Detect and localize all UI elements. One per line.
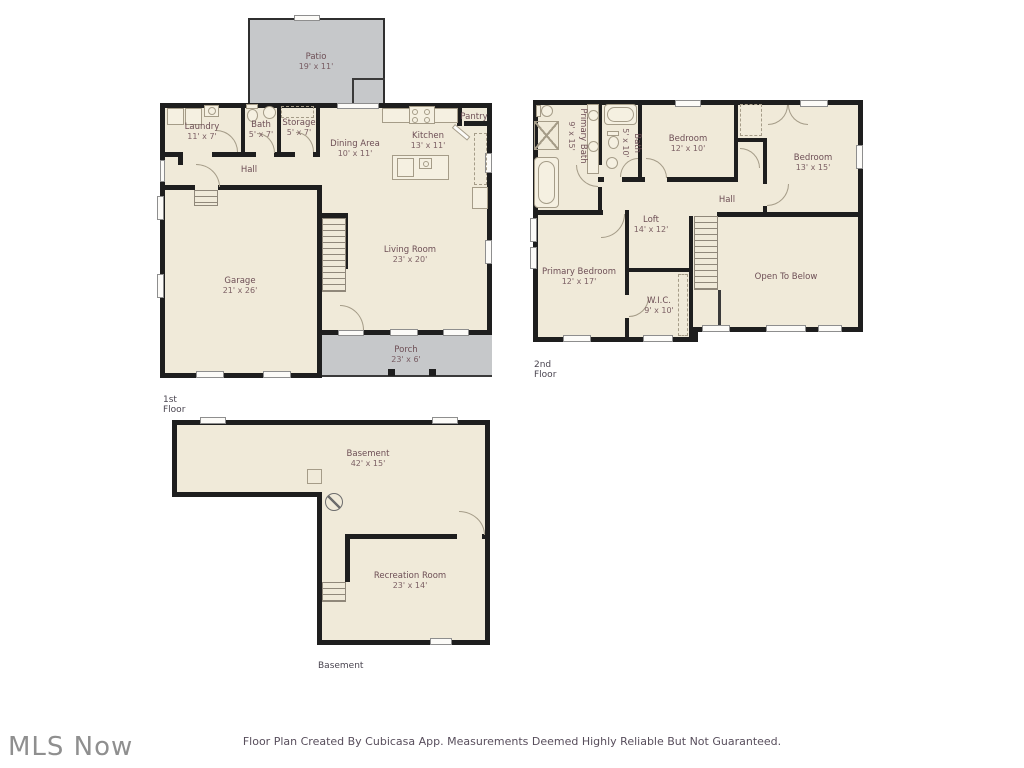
- stair-railing: [718, 290, 721, 329]
- wall: [172, 420, 177, 497]
- room-label-storage: Storage 5' x 7': [282, 118, 315, 138]
- room-dims: 21' x 26': [223, 286, 258, 296]
- wall: [693, 327, 698, 342]
- room-dims: 42' x 15': [347, 459, 390, 469]
- room-dims: 9' x 15': [566, 108, 577, 163]
- room-label-open-to-below: Open To Below: [755, 272, 818, 282]
- room-name: Pantry: [460, 112, 487, 122]
- window: [294, 15, 320, 21]
- sink-icon: [263, 106, 276, 119]
- room-label-loft: Loft 14' x 12': [634, 215, 669, 235]
- room-label-bath: Bath 5' x 7': [249, 120, 273, 140]
- room-name: Kitchen: [411, 131, 446, 141]
- room-name: Basement: [347, 449, 390, 459]
- support-post-icon: [307, 469, 322, 484]
- staircase: [322, 218, 346, 292]
- basement-area: [172, 420, 490, 497]
- window: [263, 371, 291, 378]
- window: [200, 417, 226, 424]
- counter: [474, 133, 487, 185]
- room-label-dining: Dining Area 10' x 11': [330, 139, 380, 159]
- room-label-laundry: Laundry 11' x 7': [185, 122, 220, 142]
- room-dims: 5' x 10': [620, 128, 631, 158]
- window: [818, 325, 842, 332]
- window: [856, 145, 863, 169]
- wall: [598, 177, 604, 182]
- window: [766, 325, 806, 332]
- room-label-basement: Basement 42' x 15': [347, 449, 390, 469]
- porch-post: [388, 369, 395, 376]
- burner-icon: [412, 109, 418, 115]
- room-dims: 13' x 11': [411, 141, 446, 151]
- window: [530, 247, 537, 269]
- room-dims: 9' x 10': [644, 306, 674, 316]
- window: [196, 371, 224, 378]
- front-door-opening: [160, 160, 165, 182]
- room-label-primary-bedroom: Primary Bedroom 12' x 17': [542, 267, 616, 287]
- wall: [218, 185, 322, 190]
- wall: [160, 103, 165, 378]
- patio-step-line: [352, 78, 385, 80]
- refrigerator-icon: [472, 187, 488, 209]
- wall: [763, 138, 767, 184]
- room-name: Recreation Room: [374, 571, 446, 581]
- sink-icon: [588, 110, 599, 121]
- room-dims: 5' x 7': [249, 130, 273, 140]
- room-dims: 12' x 17': [542, 277, 616, 287]
- room-label-primary-bath: Primary Bath 9' x 15': [566, 108, 588, 163]
- room-label-wic: W.I.C. 9' x 10': [644, 296, 674, 316]
- wall: [667, 177, 738, 182]
- garage-steps: [194, 190, 218, 206]
- shower-icon: [534, 121, 559, 150]
- window: [390, 329, 418, 336]
- room-label-hall: Hall: [241, 165, 257, 175]
- wall: [345, 534, 457, 539]
- wall: [345, 534, 350, 582]
- room-name: Storage: [282, 118, 315, 128]
- floor-caption-1st: 1st Floor: [163, 395, 185, 415]
- washer-icon: [167, 108, 184, 125]
- porch-edge: [322, 375, 492, 377]
- wall: [160, 373, 322, 378]
- room-label-living: Living Room 23' x 20': [384, 245, 436, 265]
- sink-icon: [423, 161, 429, 167]
- window: [485, 240, 492, 264]
- room-label-bedroom-1: Bedroom 12' x 10': [669, 134, 707, 154]
- wall: [629, 268, 692, 272]
- burner-icon: [424, 109, 430, 115]
- window: [530, 218, 537, 242]
- room-label-bedroom-2: Bedroom 13' x 15': [794, 153, 832, 173]
- room-name: Open To Below: [755, 272, 818, 282]
- room-dims: 13' x 15': [794, 163, 832, 173]
- room-dims: 23' x 6': [391, 355, 421, 365]
- window: [443, 329, 469, 336]
- room-name: Bath: [631, 128, 642, 158]
- wall: [178, 152, 183, 165]
- room-name: W.I.C.: [644, 296, 674, 306]
- wall: [485, 420, 490, 645]
- wall: [317, 492, 322, 645]
- room-name: Dining Area: [330, 139, 380, 149]
- room-name: Hall: [719, 195, 735, 205]
- wall: [487, 103, 492, 335]
- closet-rod-icon: [281, 106, 314, 118]
- room-dims: 11' x 7': [185, 132, 220, 142]
- floor-caption-basement: Basement: [318, 661, 363, 671]
- wall: [622, 177, 645, 182]
- wall: [212, 152, 256, 157]
- wall: [316, 103, 320, 152]
- mls-now-watermark: MLS Now: [8, 732, 133, 762]
- burner-icon: [412, 117, 418, 123]
- room-label-recreation: Recreation Room 23' x 14': [374, 571, 446, 591]
- staircase: [322, 582, 346, 602]
- toilet-icon: [608, 136, 619, 149]
- window: [432, 417, 458, 424]
- window: [157, 274, 164, 298]
- toilet-icon: [541, 105, 553, 117]
- sink-icon: [606, 157, 618, 169]
- wall: [625, 215, 629, 295]
- room-dims: 5' x 7': [282, 128, 315, 138]
- room-dims: 14' x 12': [634, 225, 669, 235]
- room-dims: 10' x 11': [330, 149, 380, 159]
- window: [157, 196, 164, 220]
- window: [675, 100, 701, 107]
- sink-icon: [208, 107, 216, 115]
- patio-slider-door: [337, 103, 379, 109]
- window: [643, 335, 673, 342]
- window: [563, 335, 591, 342]
- wall: [689, 216, 693, 342]
- room-label-porch: Porch 23' x 6': [391, 345, 421, 365]
- floor-caption-2nd: 2nd Floor: [534, 360, 556, 380]
- floor-plan-page: Patio 19' x 11' Laundry 11' x 7' Bath 5'…: [0, 0, 1024, 768]
- porch-post: [429, 369, 436, 376]
- room-name: Laundry: [185, 122, 220, 132]
- room-name: Bedroom: [794, 153, 832, 163]
- wall: [533, 210, 603, 215]
- closet-rod-icon: [740, 104, 762, 136]
- room-name: Bath: [249, 120, 273, 130]
- wall: [625, 318, 629, 342]
- room-name: Garage: [223, 276, 258, 286]
- bathtub-icon: [607, 107, 634, 122]
- room-name: Primary Bedroom: [542, 267, 616, 277]
- room-dims: 23' x 20': [384, 255, 436, 265]
- room-label-patio: Patio 19' x 11': [299, 52, 334, 72]
- wall: [317, 640, 490, 645]
- room-name: Porch: [391, 345, 421, 355]
- wall: [313, 152, 320, 157]
- wall: [717, 212, 863, 217]
- room-name: Patio: [299, 52, 334, 62]
- window: [430, 638, 452, 645]
- room-name: Living Room: [384, 245, 436, 255]
- staircase: [694, 216, 718, 290]
- sink-icon: [588, 141, 599, 152]
- room-label-hall2: Hall: [719, 195, 735, 205]
- wall: [172, 492, 322, 497]
- room-name: Hall: [241, 165, 257, 175]
- room-label-bath2: Bath 5' x 10': [620, 128, 642, 158]
- wall: [160, 185, 195, 190]
- room-dims: 12' x 10': [669, 144, 707, 154]
- wall: [274, 152, 295, 157]
- garage-area: [160, 330, 322, 378]
- bathtub-icon: [538, 161, 555, 204]
- room-name: Primary Bath: [577, 108, 588, 163]
- porch-door-opening: [338, 330, 364, 336]
- room-dims: 19' x 11': [299, 62, 334, 72]
- wall: [241, 103, 245, 152]
- room-label-kitchen: Kitchen 13' x 11': [411, 131, 446, 151]
- room-label-pantry: Pantry: [460, 112, 487, 122]
- burner-icon: [424, 117, 430, 123]
- disclaimer-text: Floor Plan Created By Cubicasa App. Meas…: [0, 735, 1024, 748]
- electrical-panel-icon: [325, 493, 343, 511]
- island-cabinet: [397, 158, 414, 177]
- closet-rod-icon: [678, 274, 688, 336]
- room-name: Bedroom: [669, 134, 707, 144]
- room-name: Loft: [634, 215, 669, 225]
- window: [702, 325, 730, 332]
- room-dims: 23' x 14': [374, 581, 446, 591]
- room-label-garage: Garage 21' x 26': [223, 276, 258, 296]
